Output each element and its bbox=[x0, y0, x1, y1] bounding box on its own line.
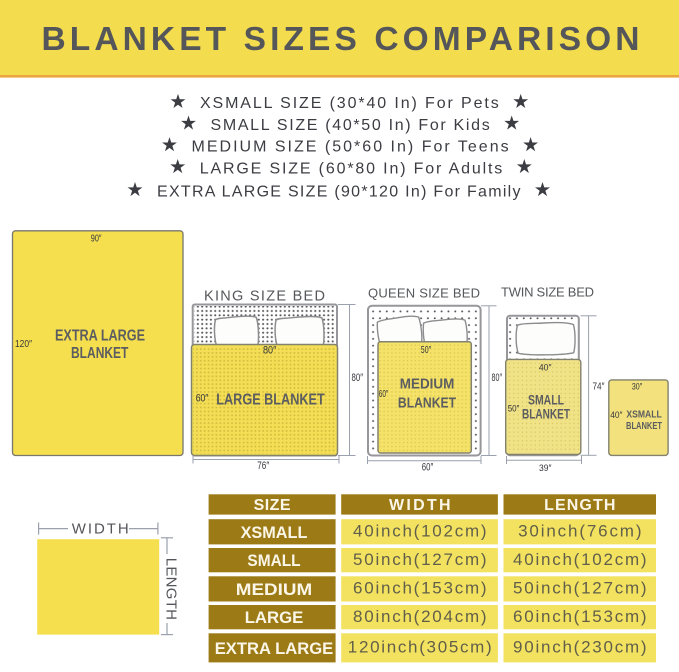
svg-text:30inch(76cm): 30inch(76cm) bbox=[518, 522, 641, 541]
svg-text:SMALL SIZE (40*50 In) For Kids: SMALL SIZE (40*50 In) For Kids bbox=[211, 117, 490, 134]
svg-text:30″: 30″ bbox=[632, 381, 643, 392]
svg-text:76″: 76″ bbox=[257, 460, 269, 472]
svg-text:EXTRA LARGE: EXTRA LARGE bbox=[55, 327, 145, 344]
svg-text:BLANKET: BLANKET bbox=[398, 396, 456, 412]
svg-text:TWIN SIZE BED: TWIN SIZE BED bbox=[501, 285, 594, 300]
svg-text:80″: 80″ bbox=[492, 372, 503, 384]
svg-text:40″: 40″ bbox=[610, 410, 623, 421]
svg-text:MEDIUM SIZE (50*60 In) For Tee: MEDIUM SIZE (50*60 In) For Teens bbox=[192, 138, 509, 155]
svg-text:SMALL: SMALL bbox=[247, 551, 300, 570]
svg-text:120inch(305cm): 120inch(305cm) bbox=[348, 638, 492, 657]
svg-text:LENGTH: LENGTH bbox=[163, 558, 180, 620]
svg-text:XSMALL: XSMALL bbox=[626, 408, 662, 420]
svg-text:LARGE BLANKET: LARGE BLANKET bbox=[216, 392, 325, 409]
svg-text:SIZE: SIZE bbox=[254, 497, 291, 514]
svg-text:60″: 60″ bbox=[379, 388, 389, 400]
svg-text:120″: 120″ bbox=[15, 338, 32, 350]
svg-text:EXTRA LARGE: EXTRA LARGE bbox=[215, 639, 334, 658]
svg-text:WIDTH: WIDTH bbox=[389, 497, 451, 514]
svg-text:BLANKET SIZES COMPARISON: BLANKET SIZES COMPARISON bbox=[42, 21, 640, 58]
svg-text:QUEEN SIZE BED: QUEEN SIZE BED bbox=[368, 286, 480, 301]
svg-text:60″: 60″ bbox=[196, 393, 209, 405]
svg-text:XSMALL: XSMALL bbox=[241, 523, 308, 542]
svg-text:BLANKET: BLANKET bbox=[71, 345, 129, 362]
svg-text:BLANKET: BLANKET bbox=[626, 420, 662, 432]
svg-text:50″: 50″ bbox=[508, 403, 520, 414]
svg-text:80″: 80″ bbox=[352, 372, 364, 384]
svg-text:XSMALL SIZE (30*40 In) For Pet: XSMALL SIZE (30*40 In) For Pets bbox=[200, 95, 499, 112]
svg-text:90″: 90″ bbox=[91, 233, 102, 244]
svg-text:39″: 39″ bbox=[539, 463, 552, 474]
svg-text:BLANKET: BLANKET bbox=[522, 406, 571, 421]
svg-text:50″: 50″ bbox=[421, 344, 431, 356]
svg-text:80″: 80″ bbox=[263, 345, 276, 357]
svg-text:40″: 40″ bbox=[539, 363, 552, 374]
svg-text:WIDTH: WIDTH bbox=[72, 520, 129, 537]
svg-text:LENGTH: LENGTH bbox=[544, 497, 615, 514]
svg-text:EXTRA LARGE SIZE (90*120 In) F: EXTRA LARGE SIZE (90*120 In) For Family bbox=[157, 183, 521, 200]
svg-text:KING SIZE BED: KING SIZE BED bbox=[204, 289, 325, 305]
svg-text:74″: 74″ bbox=[593, 381, 605, 392]
svg-text:LARGE: LARGE bbox=[245, 608, 304, 627]
svg-text:60″: 60″ bbox=[422, 462, 433, 474]
svg-text:MEDIUM: MEDIUM bbox=[236, 580, 312, 599]
svg-text:MEDIUM: MEDIUM bbox=[400, 377, 455, 393]
svg-text:LARGE SIZE (60*80 In) For Adul: LARGE SIZE (60*80 In) For Adults bbox=[200, 160, 503, 177]
